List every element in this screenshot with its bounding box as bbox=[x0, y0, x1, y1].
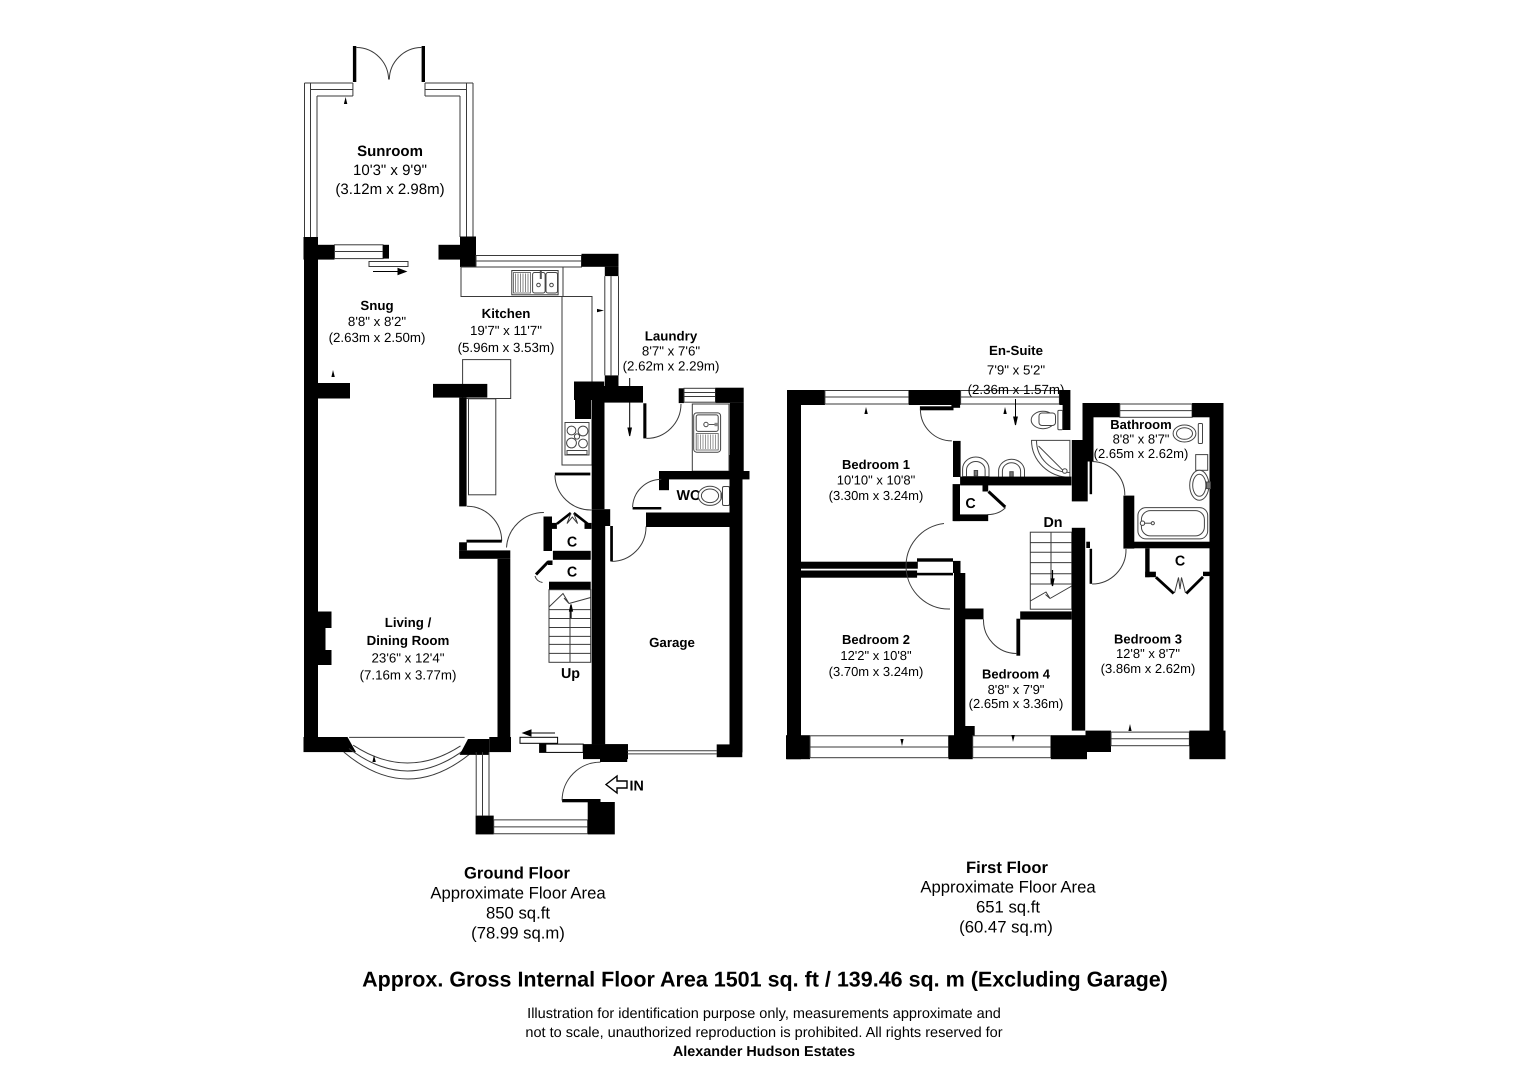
svg-text:8'8" x 8'2": 8'8" x 8'2" bbox=[348, 314, 406, 329]
svg-text:23'6" x 12'4": 23'6" x 12'4" bbox=[372, 651, 445, 666]
svg-text:En-Suite: En-Suite bbox=[989, 343, 1043, 358]
svg-text:(3.86m x 2.62m): (3.86m x 2.62m) bbox=[1101, 661, 1196, 676]
svg-text:19'7" x 11'7": 19'7" x 11'7" bbox=[470, 323, 542, 338]
svg-text:(3.70m x 3.24m): (3.70m x 3.24m) bbox=[829, 664, 924, 679]
svg-text:C: C bbox=[567, 565, 577, 581]
svg-text:C: C bbox=[1175, 554, 1185, 570]
svg-text:8'8" x 8'7": 8'8" x 8'7" bbox=[1113, 432, 1170, 447]
svg-text:(5.96m x 3.53m): (5.96m x 3.53m) bbox=[458, 340, 555, 355]
svg-text:WC: WC bbox=[677, 488, 701, 504]
svg-text:12'2" x 10'8": 12'2" x 10'8" bbox=[840, 648, 912, 663]
svg-text:(3.12m x 2.98m): (3.12m x 2.98m) bbox=[335, 181, 444, 198]
svg-text:(7.16m x 3.77m): (7.16m x 3.77m) bbox=[360, 668, 457, 683]
svg-text:Snug: Snug bbox=[360, 298, 393, 313]
svg-text:7'9" x 5'2": 7'9" x 5'2" bbox=[987, 363, 1045, 378]
svg-text:Bedroom 1: Bedroom 1 bbox=[842, 457, 910, 472]
svg-text:(3.30m x 3.24m): (3.30m x 3.24m) bbox=[829, 488, 924, 503]
svg-text:Kitchen: Kitchen bbox=[482, 306, 531, 321]
svg-text:(2.36m x 1.57m): (2.36m x 1.57m) bbox=[968, 382, 1065, 397]
svg-text:Approximate Floor Area: Approximate Floor Area bbox=[430, 884, 606, 903]
svg-text:(2.65m x 2.62m): (2.65m x 2.62m) bbox=[1094, 446, 1189, 461]
svg-text:C: C bbox=[567, 535, 577, 551]
svg-text:(2.62m x 2.29m): (2.62m x 2.29m) bbox=[623, 359, 720, 374]
svg-text:(60.47 sq.m): (60.47 sq.m) bbox=[959, 918, 1053, 937]
svg-text:Ground Floor: Ground Floor bbox=[464, 864, 571, 883]
svg-text:Sunroom: Sunroom bbox=[357, 143, 423, 160]
svg-text:Bedroom 3: Bedroom 3 bbox=[1114, 632, 1182, 647]
svg-text:Bedroom 2: Bedroom 2 bbox=[842, 632, 910, 647]
svg-text:(2.63m x 2.50m): (2.63m x 2.50m) bbox=[329, 330, 426, 345]
svg-text:Living /: Living / bbox=[385, 615, 432, 630]
svg-text:651 sq.ft: 651 sq.ft bbox=[976, 898, 1040, 917]
svg-text:Bedroom 4: Bedroom 4 bbox=[982, 667, 1051, 682]
svg-text:Bathroom: Bathroom bbox=[1110, 417, 1171, 432]
svg-text:Dn: Dn bbox=[1043, 515, 1062, 531]
svg-text:12'8" x 8'7": 12'8" x 8'7" bbox=[1116, 646, 1180, 661]
svg-text:Laundry: Laundry bbox=[645, 329, 698, 344]
svg-text:(2.65m x 3.36m): (2.65m x 3.36m) bbox=[969, 696, 1064, 711]
svg-text:First Floor: First Floor bbox=[966, 858, 1049, 877]
svg-text:Up: Up bbox=[561, 666, 580, 682]
svg-text:Alexander Hudson Estates: Alexander Hudson Estates bbox=[673, 1044, 855, 1060]
svg-text:10'10" x 10'8": 10'10" x 10'8" bbox=[837, 473, 916, 488]
svg-text:8'7" x 7'6": 8'7" x 7'6" bbox=[642, 344, 700, 359]
svg-text:IN: IN bbox=[630, 779, 644, 795]
svg-text:Approx. Gross Internal Floor A: Approx. Gross Internal Floor Area 1501 s… bbox=[362, 968, 1168, 992]
svg-text:not to scale, unauthorized rep: not to scale, unauthorized reproduction … bbox=[525, 1025, 1002, 1041]
svg-text:Dining Room: Dining Room bbox=[367, 633, 450, 648]
svg-text:10'3" x 9'9": 10'3" x 9'9" bbox=[353, 162, 427, 179]
svg-text:C: C bbox=[965, 496, 975, 512]
svg-text:Illustration for identificatio: Illustration for identification purpose … bbox=[527, 1006, 1001, 1022]
svg-text:Garage: Garage bbox=[649, 635, 695, 650]
svg-text:8'8" x 7'9": 8'8" x 7'9" bbox=[988, 682, 1045, 697]
svg-text:(78.99 sq.m): (78.99 sq.m) bbox=[471, 924, 565, 943]
svg-text:850 sq.ft: 850 sq.ft bbox=[486, 904, 550, 923]
svg-text:Approximate Floor Area: Approximate Floor Area bbox=[920, 878, 1096, 897]
